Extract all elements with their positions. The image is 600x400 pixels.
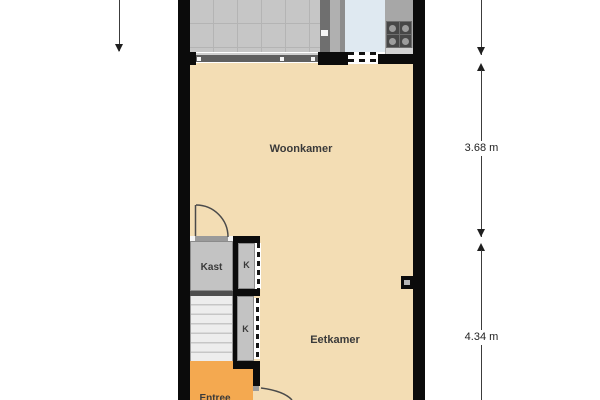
dimension-line-lower (481, 250, 482, 400)
dimension-label-lower: 4.34 m (458, 330, 505, 345)
room-label-closet-lower: K (237, 325, 254, 334)
dimension-arrow (477, 47, 485, 55)
room-label-entree: Entree (190, 394, 240, 400)
dimension-arrow-left (115, 44, 123, 52)
floor-plan: Woonkamer Eetkamer Kast K K Entree 3.68 … (0, 0, 600, 400)
room-label-closet-upper: K (238, 261, 255, 270)
dimension-arrow (477, 229, 485, 237)
dimension-label-upper: 3.68 m (458, 141, 505, 156)
room-label-kast: Kast (190, 263, 233, 273)
room-label-eetkamer: Eetkamer (285, 335, 385, 346)
kast-door-arc (196, 205, 228, 237)
entree-door-arc (261, 388, 292, 400)
room-label-woonkamer: Woonkamer (251, 144, 351, 155)
